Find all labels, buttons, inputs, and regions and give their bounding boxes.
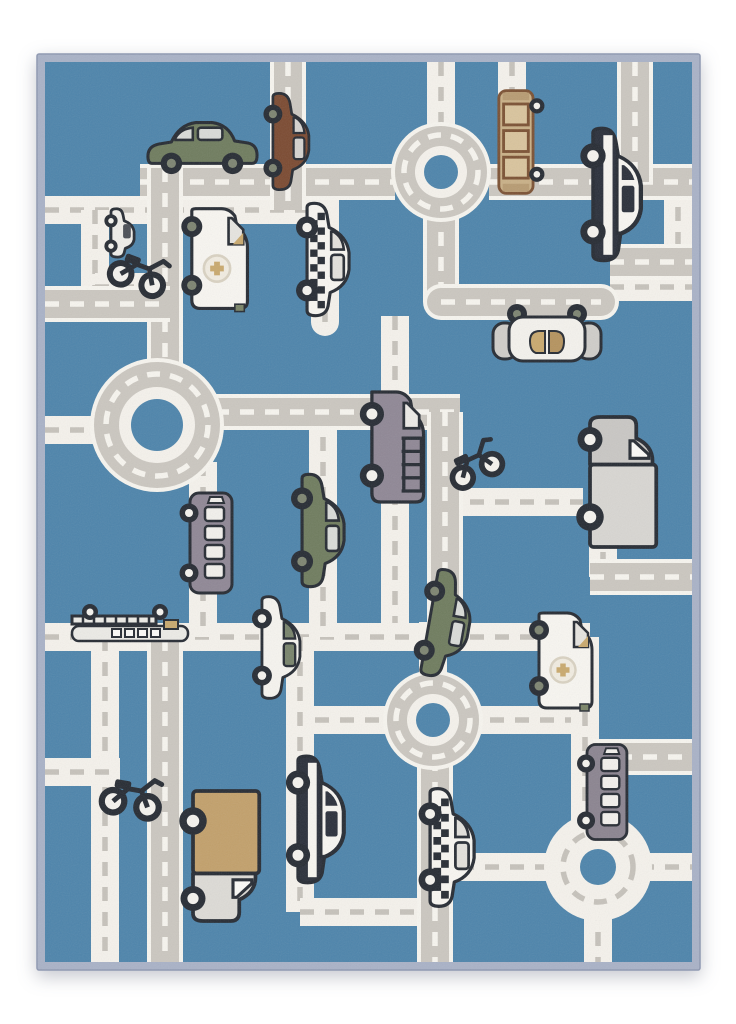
carpet-texture-overlay bbox=[37, 54, 700, 970]
play-rug bbox=[37, 54, 700, 970]
rug-scene bbox=[0, 0, 736, 1024]
rug-product-photo bbox=[0, 0, 736, 1024]
